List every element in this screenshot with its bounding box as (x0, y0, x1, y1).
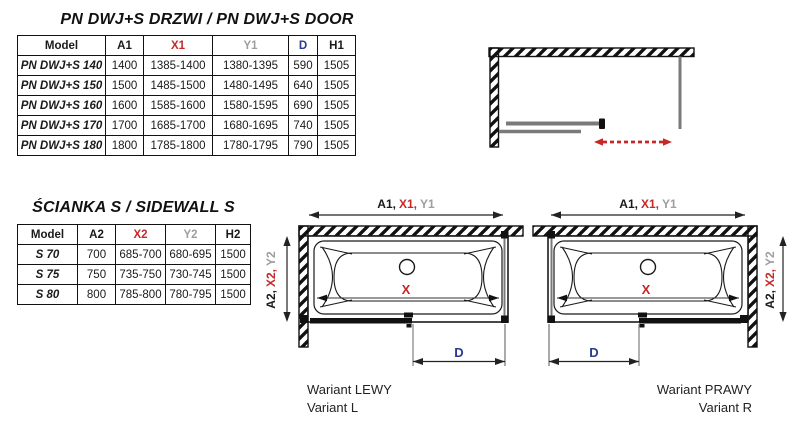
variant-left-caption: Wariant LEWY Variant L (307, 381, 392, 417)
wall-hatch-left (490, 48, 499, 147)
table-row: S 80 800 785-800 780-795 1500 (18, 285, 251, 305)
col-header-d: D (289, 36, 318, 56)
table-row: PN DWJ+S 140 1400 1385-1400 1380-1395 59… (18, 56, 356, 76)
col-header-h2: H2 (216, 225, 251, 245)
door-table-title: PN DWJ+S DRZWI / PN DWJ+S DOOR (38, 11, 376, 29)
col-header-a2: A2 (78, 225, 116, 245)
col-header-a1: A1 (106, 36, 144, 56)
glass-bracket-bottom (548, 316, 556, 324)
col-header-x1: X1 (144, 36, 213, 56)
d-dimension-value: D (564, 345, 624, 360)
table-row: S 70 700 685-700 680-695 1500 (18, 245, 251, 265)
sidewall-spec-table: Model A2 X2 Y2 H2 S 70 700 685-700 680-6… (17, 224, 251, 305)
sliding-door-panel (310, 318, 412, 324)
col-header-model: Model (18, 225, 78, 245)
height-dimension-arrow (779, 236, 786, 322)
col-header-x2: X2 (116, 225, 166, 245)
wall-hatch-right (748, 226, 757, 347)
table-header-row: Model A1 X1 Y1 D H1 (18, 36, 356, 56)
col-header-h1: H1 (318, 36, 356, 56)
table-row: S 75 750 735-750 730-745 1500 (18, 265, 251, 285)
table-header-row: Model A2 X2 Y2 H2 (18, 225, 251, 245)
col-header-y2: Y2 (166, 225, 216, 245)
door-spec-table: Model A1 X1 Y1 D H1 PN DWJ+S 140 1400 13… (17, 35, 356, 156)
table-row: PN DWJ+S 180 1800 1785-1800 1780-1795 79… (18, 136, 356, 156)
x-dimension-value: X (616, 282, 676, 297)
height-dimension-arrow (283, 236, 290, 322)
door-top-view-drawing (489, 48, 694, 147)
table-row: PN DWJ+S 150 1500 1485-1500 1480-1495 64… (18, 76, 356, 96)
door-handle-icon (404, 313, 413, 318)
sliding-door-panel (639, 318, 741, 324)
door-handle-icon (599, 119, 605, 130)
col-header-y1: Y1 (213, 36, 289, 56)
glass-bracket-top (548, 231, 556, 239)
height-dimension-label: A2,X2,Y2 (264, 220, 278, 340)
wall-hatch-left (299, 226, 308, 347)
door-handle-icon (638, 313, 647, 318)
width-dimension-arrow (309, 211, 503, 218)
d-dimension-value: D (429, 345, 489, 360)
width-dimension-label: A1,X1,Y1 (551, 197, 745, 211)
width-dimension-arrow (551, 211, 745, 218)
table-row: PN DWJ+S 170 1700 1685-1700 1680-1695 74… (18, 116, 356, 136)
glass-bracket-top (501, 231, 509, 239)
height-dimension-label: A2,X2,Y2 (763, 220, 777, 340)
glass-bracket-bottom (501, 316, 509, 324)
wall-hatch-top (533, 226, 757, 236)
width-dimension-label: A1,X1,Y1 (309, 197, 503, 211)
sidewall-table-title: ŚCIANKA S / SIDEWALL S (17, 199, 250, 217)
slide-direction-arrow-icon (594, 138, 672, 146)
wall-bracket (740, 315, 748, 323)
bathtub-outline (548, 236, 748, 322)
wall-hatch-top (299, 226, 523, 236)
variant-right-caption: Wariant PRAWY Variant R (552, 381, 752, 417)
wall-hatch-top (489, 48, 694, 57)
door-roller (407, 324, 412, 328)
wall-bracket (300, 315, 308, 323)
table-row: PN DWJ+S 160 1600 1585-1600 1580-1595 69… (18, 96, 356, 116)
bathtub-outline (308, 236, 508, 322)
col-header-model: Model (18, 36, 106, 56)
x-dimension-value: X (376, 282, 436, 297)
door-roller (640, 324, 645, 328)
